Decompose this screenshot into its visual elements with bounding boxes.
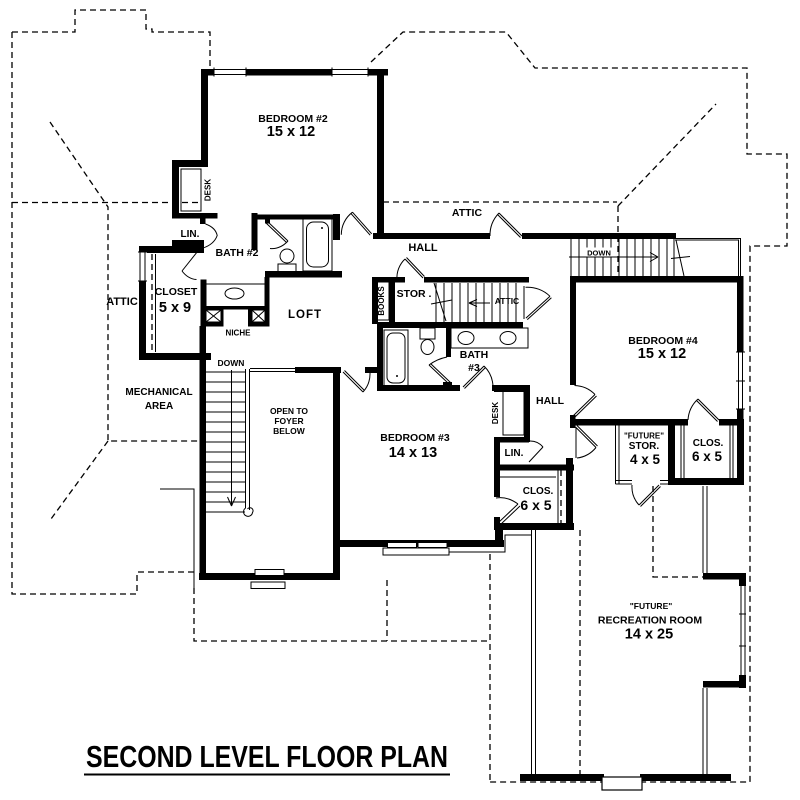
svg-text:RECREATION ROOM: RECREATION ROOM	[598, 615, 702, 627]
svg-text:ATTIC: ATTIC	[452, 207, 483, 219]
svg-text:ATTIC: ATTIC	[106, 296, 138, 308]
svg-text:FOYER: FOYER	[274, 416, 303, 426]
svg-text:DOWN: DOWN	[587, 249, 611, 258]
svg-text:4 x 5: 4 x 5	[630, 452, 661, 467]
svg-text:BATH: BATH	[460, 349, 488, 361]
svg-text:"FUTURE": "FUTURE"	[624, 432, 664, 441]
svg-text:CLOS.: CLOS.	[693, 438, 724, 449]
svg-text:CLOSET: CLOSET	[155, 286, 198, 298]
svg-text:LIN.: LIN.	[505, 448, 524, 459]
svg-text:BATH #2: BATH #2	[216, 247, 259, 259]
svg-text:OPEN TO: OPEN TO	[270, 406, 308, 416]
svg-text:BEDROOM #3: BEDROOM #3	[380, 432, 450, 444]
svg-text:HALL: HALL	[536, 395, 565, 407]
svg-text:MECHANICAL: MECHANICAL	[125, 387, 192, 398]
svg-text:BOOKS: BOOKS	[377, 286, 386, 316]
svg-text:LIN.: LIN.	[181, 229, 200, 240]
svg-text:HALL: HALL	[408, 242, 438, 254]
svg-text:DOWN: DOWN	[218, 358, 245, 368]
svg-text:STOR .: STOR .	[397, 288, 432, 300]
svg-text:SECOND LEVEL FLOOR PLAN: SECOND LEVEL FLOOR PLAN	[86, 739, 448, 774]
svg-text:ATTIC: ATTIC	[495, 296, 519, 306]
svg-text:AREA: AREA	[145, 401, 173, 412]
svg-text:14 x 13: 14 x 13	[389, 445, 437, 461]
svg-text:15 x 12: 15 x 12	[638, 346, 686, 362]
svg-text:6 x 5: 6 x 5	[520, 497, 551, 513]
svg-text:BELOW: BELOW	[273, 426, 306, 436]
svg-text:14 x 25: 14 x 25	[625, 627, 673, 643]
svg-text:"FUTURE": "FUTURE"	[630, 601, 673, 611]
svg-text:15 x 12: 15 x 12	[267, 124, 315, 140]
svg-text:STOR.: STOR.	[629, 441, 660, 452]
svg-text:CLOS.: CLOS.	[523, 486, 554, 497]
svg-text:LOFT: LOFT	[288, 309, 322, 321]
svg-text:5 x 9: 5 x 9	[159, 300, 191, 316]
svg-text:DESK: DESK	[491, 402, 500, 424]
svg-text:NICHE: NICHE	[226, 329, 252, 338]
svg-text:DESK: DESK	[204, 179, 213, 201]
svg-text:6 x 5: 6 x 5	[692, 449, 723, 464]
